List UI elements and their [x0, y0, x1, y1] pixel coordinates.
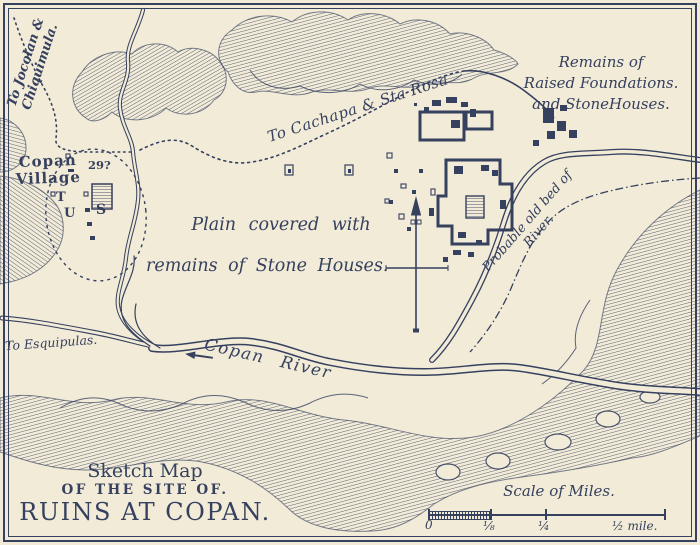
label-ruin-u: U — [64, 206, 75, 221]
hill-band-north — [219, 12, 518, 95]
scale-tick-0: 0 — [425, 518, 433, 532]
scale-tick-quarter: ¼ — [538, 519, 550, 533]
title-line-3: RUINS AT COPAN. — [14, 499, 276, 526]
label-plain-line2: remains of Stone Houses. — [146, 256, 388, 276]
label-ruin-s: S — [96, 202, 106, 218]
map-title-block: Sketch Map OF THE SITE OF. RUINS AT COPA… — [14, 461, 276, 526]
label-copan-village: Copan Village — [3, 151, 92, 189]
scale-tick-eighth: ⅛ — [483, 519, 495, 533]
label-remains: Remains of Raised Foundations. and Stone… — [503, 52, 699, 115]
label-ruin-t: T — [56, 190, 66, 205]
label-ruin-29: 29? — [88, 158, 111, 172]
title-line-1: Sketch Map — [14, 461, 276, 482]
scale-tick-half-mile: ½ mile. — [612, 519, 657, 533]
title-line-2: OF THE SITE OF. — [14, 482, 276, 499]
label-plain-line1: Plain covered with — [175, 215, 387, 235]
scale-title: Scale of Miles. — [468, 483, 650, 500]
hill-blob-northwest — [73, 44, 227, 121]
copan-sketch-map: To Jocolan & Chiquimula. Copan Village 2… — [0, 0, 700, 545]
